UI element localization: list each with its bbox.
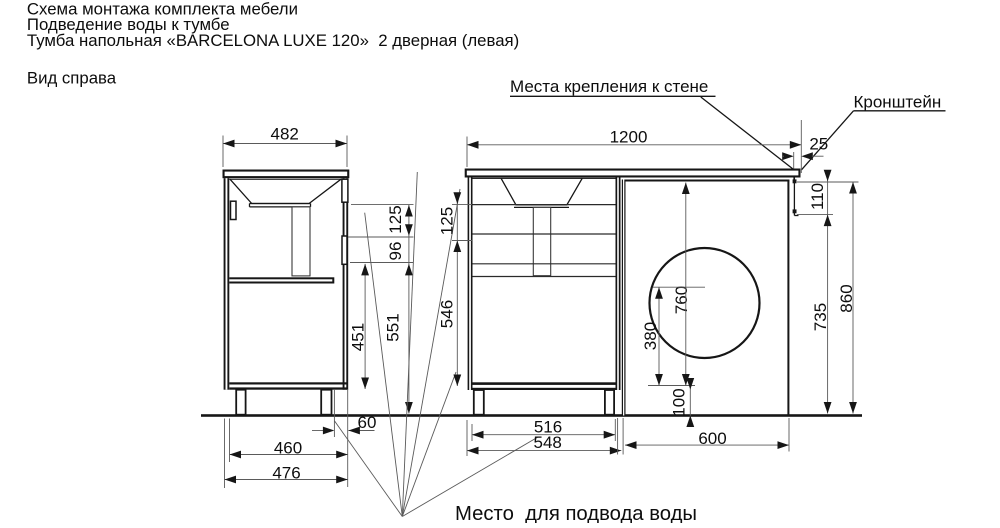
svg-text:Кронштейн: Кронштейн [854,93,942,112]
svg-text:Место для подвода воды: Место для подвода воды [455,503,697,523]
svg-text:Вид справа: Вид справа [27,68,117,87]
svg-text:96: 96 [386,242,405,261]
svg-text:1200: 1200 [610,128,648,147]
svg-text:60: 60 [358,413,377,432]
svg-text:551: 551 [383,313,402,341]
svg-text:735: 735 [811,303,830,331]
svg-text:125: 125 [437,207,456,235]
svg-text:25: 25 [809,135,828,154]
svg-text:125: 125 [386,205,405,233]
svg-text:760: 760 [672,286,691,314]
svg-text:546: 546 [437,300,456,328]
svg-text:110: 110 [808,183,827,210]
svg-text:482: 482 [271,125,299,144]
svg-text:548: 548 [534,433,562,452]
svg-text:Места крепления к стене: Места крепления к стене [510,77,708,96]
svg-text:Тумба напольная «BARCELONA LUX: Тумба напольная «BARCELONA LUXE 120» 2 д… [27,31,519,50]
svg-text:380: 380 [641,322,660,350]
svg-text:100: 100 [669,388,688,416]
